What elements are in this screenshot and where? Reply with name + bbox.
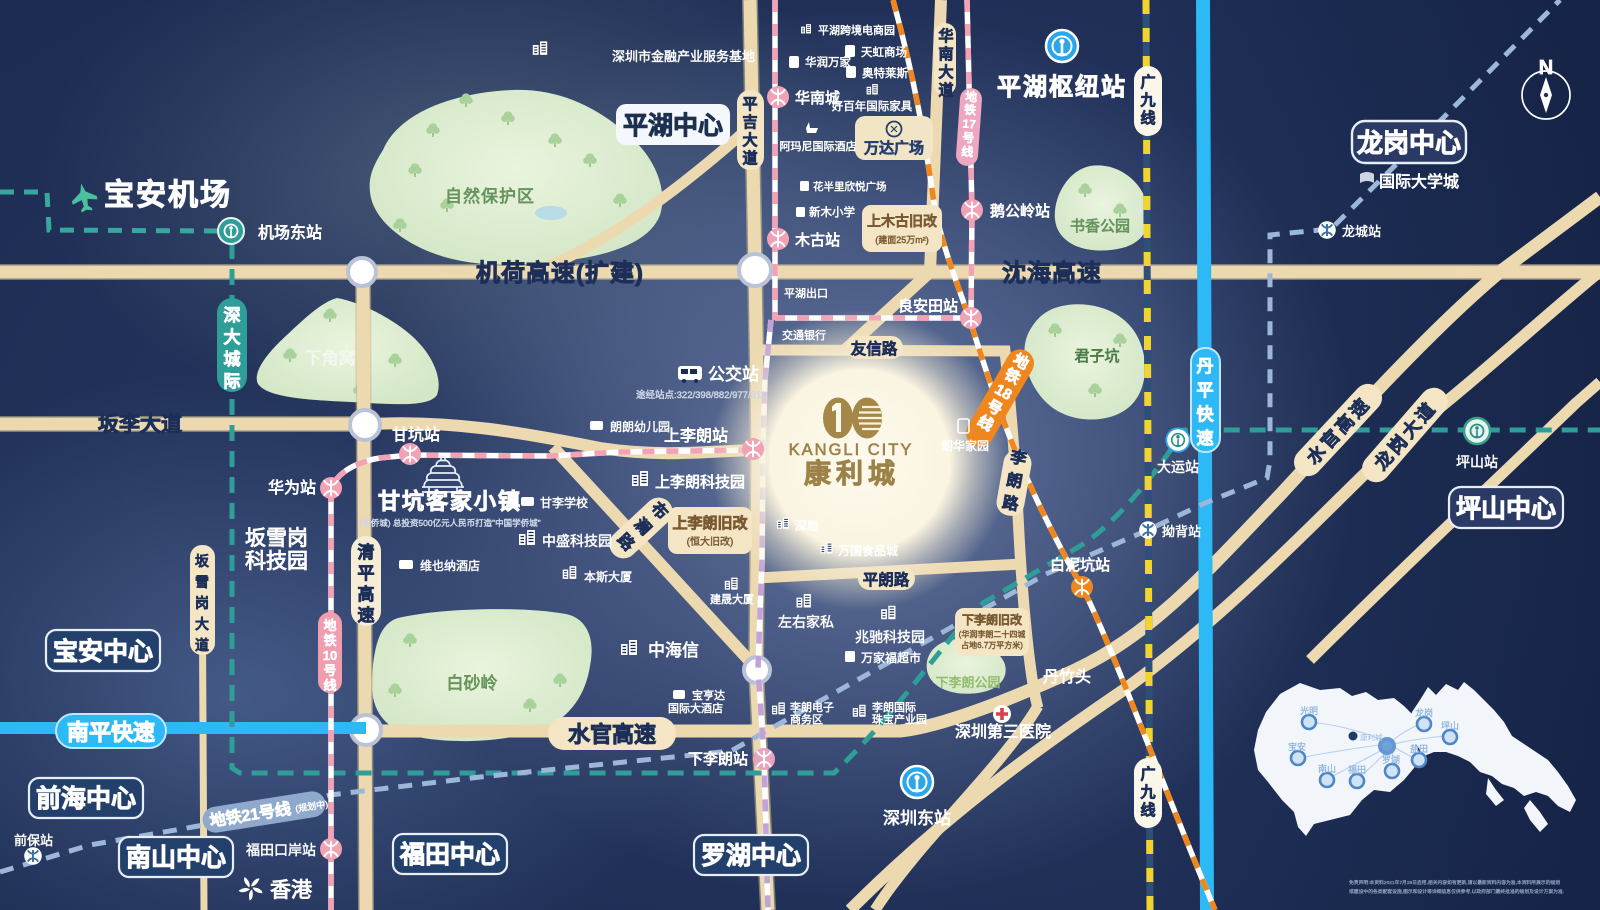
- svg-text:沈海高速: 沈海高速: [1002, 259, 1102, 287]
- svg-text:广: 广: [1140, 73, 1155, 91]
- svg-text:下李朗站: 下李朗站: [688, 751, 748, 768]
- svg-text:康利城: 康利城: [1360, 732, 1383, 742]
- svg-text:甘李学校: 甘李学校: [540, 495, 588, 510]
- svg-text:万达广场: 万达广场: [863, 139, 924, 157]
- svg-text:平湖中心: 平湖中心: [623, 112, 723, 140]
- svg-text:国际大学城: 国际大学城: [1379, 173, 1459, 191]
- svg-text:华润万家: 华润万家: [805, 55, 851, 69]
- svg-text:本斯大厦: 本斯大厦: [584, 570, 632, 584]
- svg-text:甘坑站: 甘坑站: [392, 426, 440, 444]
- svg-text:国际大酒店: 国际大酒店: [668, 701, 723, 715]
- svg-text:坂: 坂: [195, 553, 210, 569]
- svg-text:万家福超市: 万家福超市: [861, 650, 921, 665]
- svg-text:白泥坑站: 白泥坑站: [1050, 557, 1110, 574]
- svg-text:罗湖中心: 罗湖中心: [701, 842, 801, 870]
- svg-text:或建设中的各类配套设施,图示和设计等详细信息仅供参考,以政府: 或建设中的各类配套设施,图示和设计等详细信息仅供参考,以政府部门最终批准的规划及…: [1349, 888, 1564, 895]
- svg-text:途经站点:322/398/882/977/311: 途经站点:322/398/882/977/311: [636, 389, 766, 401]
- svg-text:香港: 香港: [270, 879, 312, 902]
- svg-text:地: 地: [323, 618, 336, 633]
- svg-text:线: 线: [323, 678, 336, 693]
- svg-text:线: 线: [961, 144, 974, 160]
- svg-text:平朗路: 平朗路: [863, 570, 910, 589]
- svg-text:宝安: 宝安: [1288, 741, 1306, 752]
- svg-text:高: 高: [358, 584, 375, 604]
- svg-text:君子坑: 君子坑: [1074, 348, 1119, 365]
- svg-text:下角窝: 下角窝: [305, 349, 356, 368]
- svg-text:宝亨达: 宝亨达: [692, 688, 725, 702]
- svg-text:朗华家园: 朗华家园: [941, 438, 989, 453]
- svg-text:深圳第三医院: 深圳第三医院: [955, 723, 1051, 741]
- svg-text:雪: 雪: [195, 574, 209, 590]
- svg-text:华为站: 华为站: [268, 479, 316, 497]
- svg-text:华: 华: [938, 27, 953, 45]
- svg-text:拗背站: 拗背站: [1162, 524, 1201, 539]
- svg-text:维也纳酒店: 维也纳酒店: [420, 559, 480, 573]
- svg-text:占地6.7万平方米): 占地6.7万平方米): [961, 640, 1023, 650]
- svg-text:阿玛尼国际酒店: 阿玛尼国际酒店: [780, 139, 857, 153]
- svg-text:九: 九: [1139, 91, 1155, 109]
- svg-text:深圳市金融产业服务基地: 深圳市金融产业服务基地: [612, 49, 755, 64]
- svg-text:吉: 吉: [742, 113, 757, 131]
- svg-text:兆驰科技园: 兆驰科技园: [855, 629, 925, 645]
- svg-text:大: 大: [224, 327, 241, 347]
- svg-text:丹竹头: 丹竹头: [1043, 668, 1091, 686]
- svg-text:号: 号: [323, 663, 336, 678]
- svg-text:南: 南: [938, 45, 953, 63]
- svg-text:线: 线: [1140, 109, 1155, 127]
- svg-text:道: 道: [938, 81, 953, 99]
- svg-text:10: 10: [323, 648, 337, 663]
- svg-text:好百年国际家具: 好百年国际家具: [832, 99, 913, 113]
- svg-text:公交站: 公交站: [708, 365, 759, 384]
- svg-text:龙岗中心: 龙岗中心: [1357, 128, 1461, 158]
- svg-text:自然保护区: 自然保护区: [445, 187, 535, 206]
- svg-text:大运站: 大运站: [1157, 459, 1199, 475]
- svg-text:平: 平: [742, 96, 757, 113]
- svg-text:平湖出口: 平湖出口: [784, 286, 828, 300]
- svg-text:福田: 福田: [1348, 764, 1366, 775]
- svg-text:鹅公岭站: 鹅公岭站: [990, 203, 1050, 220]
- svg-text:科技园: 科技园: [245, 550, 308, 573]
- svg-text:平湖跨境电商园: 平湖跨境电商园: [818, 23, 895, 37]
- svg-text:清: 清: [358, 542, 375, 562]
- svg-text:前海中心: 前海中心: [36, 784, 136, 813]
- svg-text:际: 际: [224, 372, 241, 391]
- svg-text:上李朗旧改: 上李朗旧改: [672, 514, 748, 532]
- svg-text:上木古旧改: 上木古旧改: [867, 213, 938, 229]
- svg-text:花半里欣悦广场: 花半里欣悦广场: [813, 180, 887, 193]
- svg-text:广: 广: [1140, 765, 1155, 783]
- svg-text:坪山中心: 坪山中心: [1456, 495, 1556, 523]
- svg-text:N: N: [1539, 57, 1553, 79]
- svg-text:新木小学: 新木小学: [809, 205, 855, 219]
- svg-text:速: 速: [1197, 428, 1214, 448]
- svg-text:大: 大: [742, 131, 757, 149]
- svg-text:平湖枢纽站: 平湖枢纽站: [997, 73, 1127, 101]
- svg-text:KANGLI CITY: KANGLI CITY: [789, 441, 914, 459]
- svg-text:(华侨城) 总投资500亿元人民币打造"中国学侨城": (华侨城) 总投资500亿元人民币打造"中国学侨城": [359, 518, 540, 528]
- svg-text:大: 大: [195, 616, 209, 632]
- svg-text:深粮: 深粮: [795, 518, 819, 533]
- svg-text:龙岗: 龙岗: [1415, 707, 1433, 718]
- svg-text:道: 道: [742, 149, 757, 167]
- svg-text:机场东站: 机场东站: [258, 224, 322, 242]
- svg-text:岗: 岗: [195, 595, 209, 611]
- svg-text:李朗电子: 李朗电子: [790, 700, 834, 714]
- svg-text:线: 线: [1140, 801, 1155, 819]
- svg-text:九: 九: [1139, 783, 1155, 801]
- svg-text:罗湖: 罗湖: [1382, 755, 1400, 765]
- svg-text:宝安机场: 宝安机场: [104, 178, 232, 212]
- svg-text:大: 大: [938, 63, 953, 81]
- svg-text:深: 深: [224, 305, 241, 325]
- svg-text:中海信: 中海信: [648, 641, 699, 660]
- svg-text:珠宝产业园: 珠宝产业园: [872, 712, 927, 726]
- svg-text:康利城: 康利城: [804, 458, 900, 489]
- svg-text:坪山: 坪山: [1441, 721, 1459, 731]
- svg-text:交通银行: 交通银行: [782, 328, 826, 342]
- svg-text:龙城站: 龙城站: [1342, 224, 1381, 239]
- svg-text:(建面25万m²): (建面25万m²): [875, 234, 929, 245]
- svg-text:下李朗公园: 下李朗公园: [935, 675, 1000, 690]
- svg-text:天虹商场: 天虹商场: [861, 45, 907, 59]
- svg-text:坪山站: 坪山站: [1456, 454, 1498, 470]
- svg-text:南山中心: 南山中心: [126, 844, 226, 872]
- svg-text:坂李大道: 坂李大道: [98, 412, 182, 436]
- svg-text:深圳东站: 深圳东站: [883, 809, 951, 828]
- svg-text:机荷高速(扩建): 机荷高速(扩建): [476, 259, 644, 287]
- svg-text:(华润李朗二十四城: (华润李朗二十四城: [959, 629, 1026, 639]
- svg-text:平: 平: [1197, 381, 1214, 400]
- svg-text:上李朗站: 上李朗站: [664, 427, 728, 445]
- svg-text:木古站: 木古站: [795, 232, 840, 249]
- svg-text:(恒大旧改): (恒大旧改): [687, 535, 734, 548]
- svg-text:快: 快: [1197, 404, 1215, 424]
- svg-text:城: 城: [224, 350, 241, 369]
- svg-text:商务区: 商务区: [790, 712, 823, 726]
- svg-text:白砂岭: 白砂岭: [447, 674, 498, 693]
- svg-text:上李朗科技园: 上李朗科技园: [655, 474, 745, 491]
- svg-text:良安田站: 良安田站: [898, 298, 958, 315]
- svg-text:南山: 南山: [1318, 763, 1336, 774]
- svg-text:下李朗旧改: 下李朗旧改: [962, 612, 1023, 627]
- svg-text:平: 平: [358, 564, 375, 583]
- svg-text:前保站: 前保站: [14, 833, 53, 848]
- svg-text:铁: 铁: [322, 633, 336, 648]
- svg-text:号: 号: [962, 130, 975, 146]
- svg-text:福田口岸站: 福田口岸站: [246, 842, 316, 858]
- svg-text:甘坑客家小镇: 甘坑客家小镇: [378, 489, 522, 514]
- svg-text:坂雪岗: 坂雪岗: [245, 527, 308, 550]
- svg-text:速: 速: [358, 605, 375, 625]
- svg-text:左右家私: 左右家私: [778, 614, 834, 630]
- svg-text:福田中心: 福田中心: [399, 841, 500, 869]
- svg-text:友信路: 友信路: [851, 339, 898, 358]
- svg-text:建晟大厦: 建晟大厦: [710, 592, 754, 606]
- svg-text:朗朗幼儿园: 朗朗幼儿园: [610, 420, 670, 434]
- svg-text:宝安中心: 宝安中心: [53, 637, 153, 666]
- svg-text:盐田: 盐田: [1410, 743, 1428, 754]
- svg-text:17: 17: [962, 117, 977, 132]
- svg-text:书香公园: 书香公园: [1070, 218, 1130, 235]
- svg-text:道: 道: [195, 637, 209, 653]
- svg-text:南平快速: 南平快速: [67, 720, 155, 745]
- svg-text:水官高速: 水官高速: [568, 722, 656, 747]
- svg-text:铁: 铁: [964, 102, 977, 118]
- svg-text:奥特莱斯: 奥特莱斯: [862, 66, 908, 80]
- svg-text:免责声明:本资料2021年7月26日启用,相关内容如有更新,: 免责声明:本资料2021年7月26日启用,相关内容如有更新,请以最新资料内容为准…: [1349, 879, 1560, 886]
- svg-text:万国食品城: 万国食品城: [838, 543, 898, 558]
- svg-text:丹: 丹: [1197, 357, 1214, 376]
- svg-text:李朗国际: 李朗国际: [872, 700, 916, 714]
- svg-text:中盛科技园: 中盛科技园: [542, 533, 612, 549]
- svg-text:光明: 光明: [1300, 705, 1318, 716]
